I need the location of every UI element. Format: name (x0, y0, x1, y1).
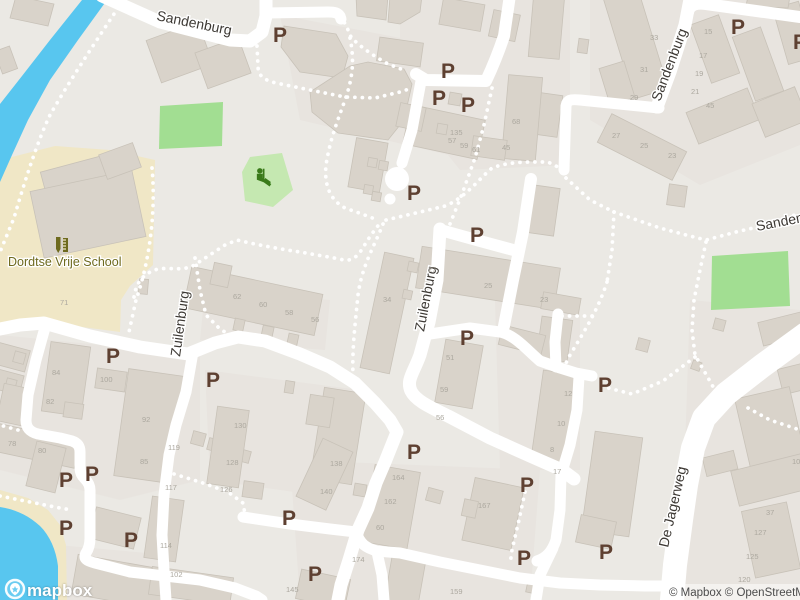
svg-text:8: 8 (550, 445, 554, 454)
svg-text:P: P (441, 60, 455, 83)
svg-text:167: 167 (478, 501, 491, 510)
svg-text:135: 135 (450, 128, 463, 137)
svg-text:P: P (407, 182, 421, 205)
svg-text:15: 15 (704, 27, 712, 36)
svg-text:P: P (461, 94, 475, 117)
svg-text:37: 37 (766, 508, 774, 517)
svg-text:59: 59 (440, 385, 448, 394)
svg-text:23: 23 (540, 295, 548, 304)
svg-text:33: 33 (650, 33, 658, 42)
svg-text:P: P (273, 24, 287, 47)
svg-text:138: 138 (330, 459, 343, 468)
svg-text:P: P (460, 327, 474, 350)
svg-text:25: 25 (484, 281, 492, 290)
svg-text:92: 92 (142, 415, 150, 424)
svg-text:21: 21 (691, 87, 699, 96)
svg-text:P: P (106, 345, 120, 368)
svg-text:Dordtse Vrije School: Dordtse Vrije School (8, 255, 121, 269)
svg-text:59: 59 (460, 141, 468, 150)
svg-text:140: 140 (320, 487, 333, 496)
svg-text:P: P (520, 474, 534, 497)
svg-text:P: P (206, 369, 220, 392)
svg-text:125: 125 (746, 552, 759, 561)
svg-text:60: 60 (376, 523, 384, 532)
svg-text:120: 120 (738, 575, 751, 584)
svg-text:126: 126 (220, 485, 233, 494)
svg-text:56: 56 (436, 413, 444, 422)
svg-text:68: 68 (512, 117, 520, 126)
svg-text:127: 127 (754, 528, 767, 537)
svg-text:45: 45 (706, 101, 714, 110)
svg-text:P: P (85, 463, 99, 486)
svg-text:© Mapbox © OpenStreetMap: © Mapbox © OpenStreetMap (669, 587, 800, 599)
svg-text:159: 159 (450, 587, 463, 596)
svg-text:34: 34 (383, 295, 391, 304)
svg-text:57: 57 (448, 136, 456, 145)
svg-text:27: 27 (612, 131, 620, 140)
svg-text:P: P (59, 517, 73, 540)
svg-text:mapbox: mapbox (27, 581, 93, 600)
svg-text:114: 114 (160, 541, 172, 550)
svg-text:62: 62 (233, 292, 241, 301)
svg-text:P: P (598, 374, 612, 397)
svg-text:P: P (407, 441, 421, 464)
svg-text:102: 102 (170, 570, 183, 579)
svg-text:P: P (793, 31, 800, 54)
svg-text:60: 60 (259, 300, 267, 309)
svg-text:130: 130 (234, 421, 247, 430)
svg-text:51: 51 (446, 353, 454, 362)
svg-text:10: 10 (792, 457, 800, 466)
svg-text:174: 174 (352, 555, 365, 564)
svg-text:P: P (517, 547, 531, 570)
svg-text:145: 145 (286, 585, 299, 594)
svg-text:31: 31 (640, 65, 648, 74)
svg-text:100: 100 (100, 375, 113, 384)
svg-text:85: 85 (140, 457, 148, 466)
svg-text:45: 45 (502, 143, 510, 152)
svg-text:56: 56 (311, 315, 319, 324)
svg-text:61: 61 (472, 145, 480, 154)
svg-text:P: P (59, 469, 73, 492)
svg-text:25: 25 (640, 141, 648, 150)
svg-text:12: 12 (564, 389, 572, 398)
svg-text:27: 27 (428, 265, 436, 274)
svg-text:P: P (124, 529, 138, 552)
svg-text:P: P (470, 224, 484, 247)
svg-text:128: 128 (226, 458, 239, 467)
svg-text:82: 82 (46, 397, 54, 406)
svg-text:119: 119 (168, 443, 180, 452)
svg-text:58: 58 (285, 308, 293, 317)
svg-text:80: 80 (38, 446, 46, 455)
svg-text:29: 29 (630, 93, 638, 102)
svg-text:162: 162 (384, 497, 397, 506)
svg-text:117: 117 (165, 483, 177, 492)
svg-text:71: 71 (60, 298, 68, 307)
svg-text:17: 17 (553, 467, 561, 476)
svg-text:23: 23 (668, 151, 676, 160)
svg-text:10: 10 (557, 419, 565, 428)
svg-text:78: 78 (8, 439, 16, 448)
svg-text:P: P (731, 16, 745, 39)
svg-text:P: P (432, 87, 446, 110)
svg-text:P: P (308, 563, 322, 586)
svg-text:19: 19 (695, 69, 703, 78)
svg-text:84: 84 (52, 368, 60, 377)
svg-text:P: P (282, 507, 296, 530)
svg-text:17: 17 (699, 51, 707, 60)
svg-text:P: P (599, 541, 613, 564)
svg-text:164: 164 (392, 473, 405, 482)
